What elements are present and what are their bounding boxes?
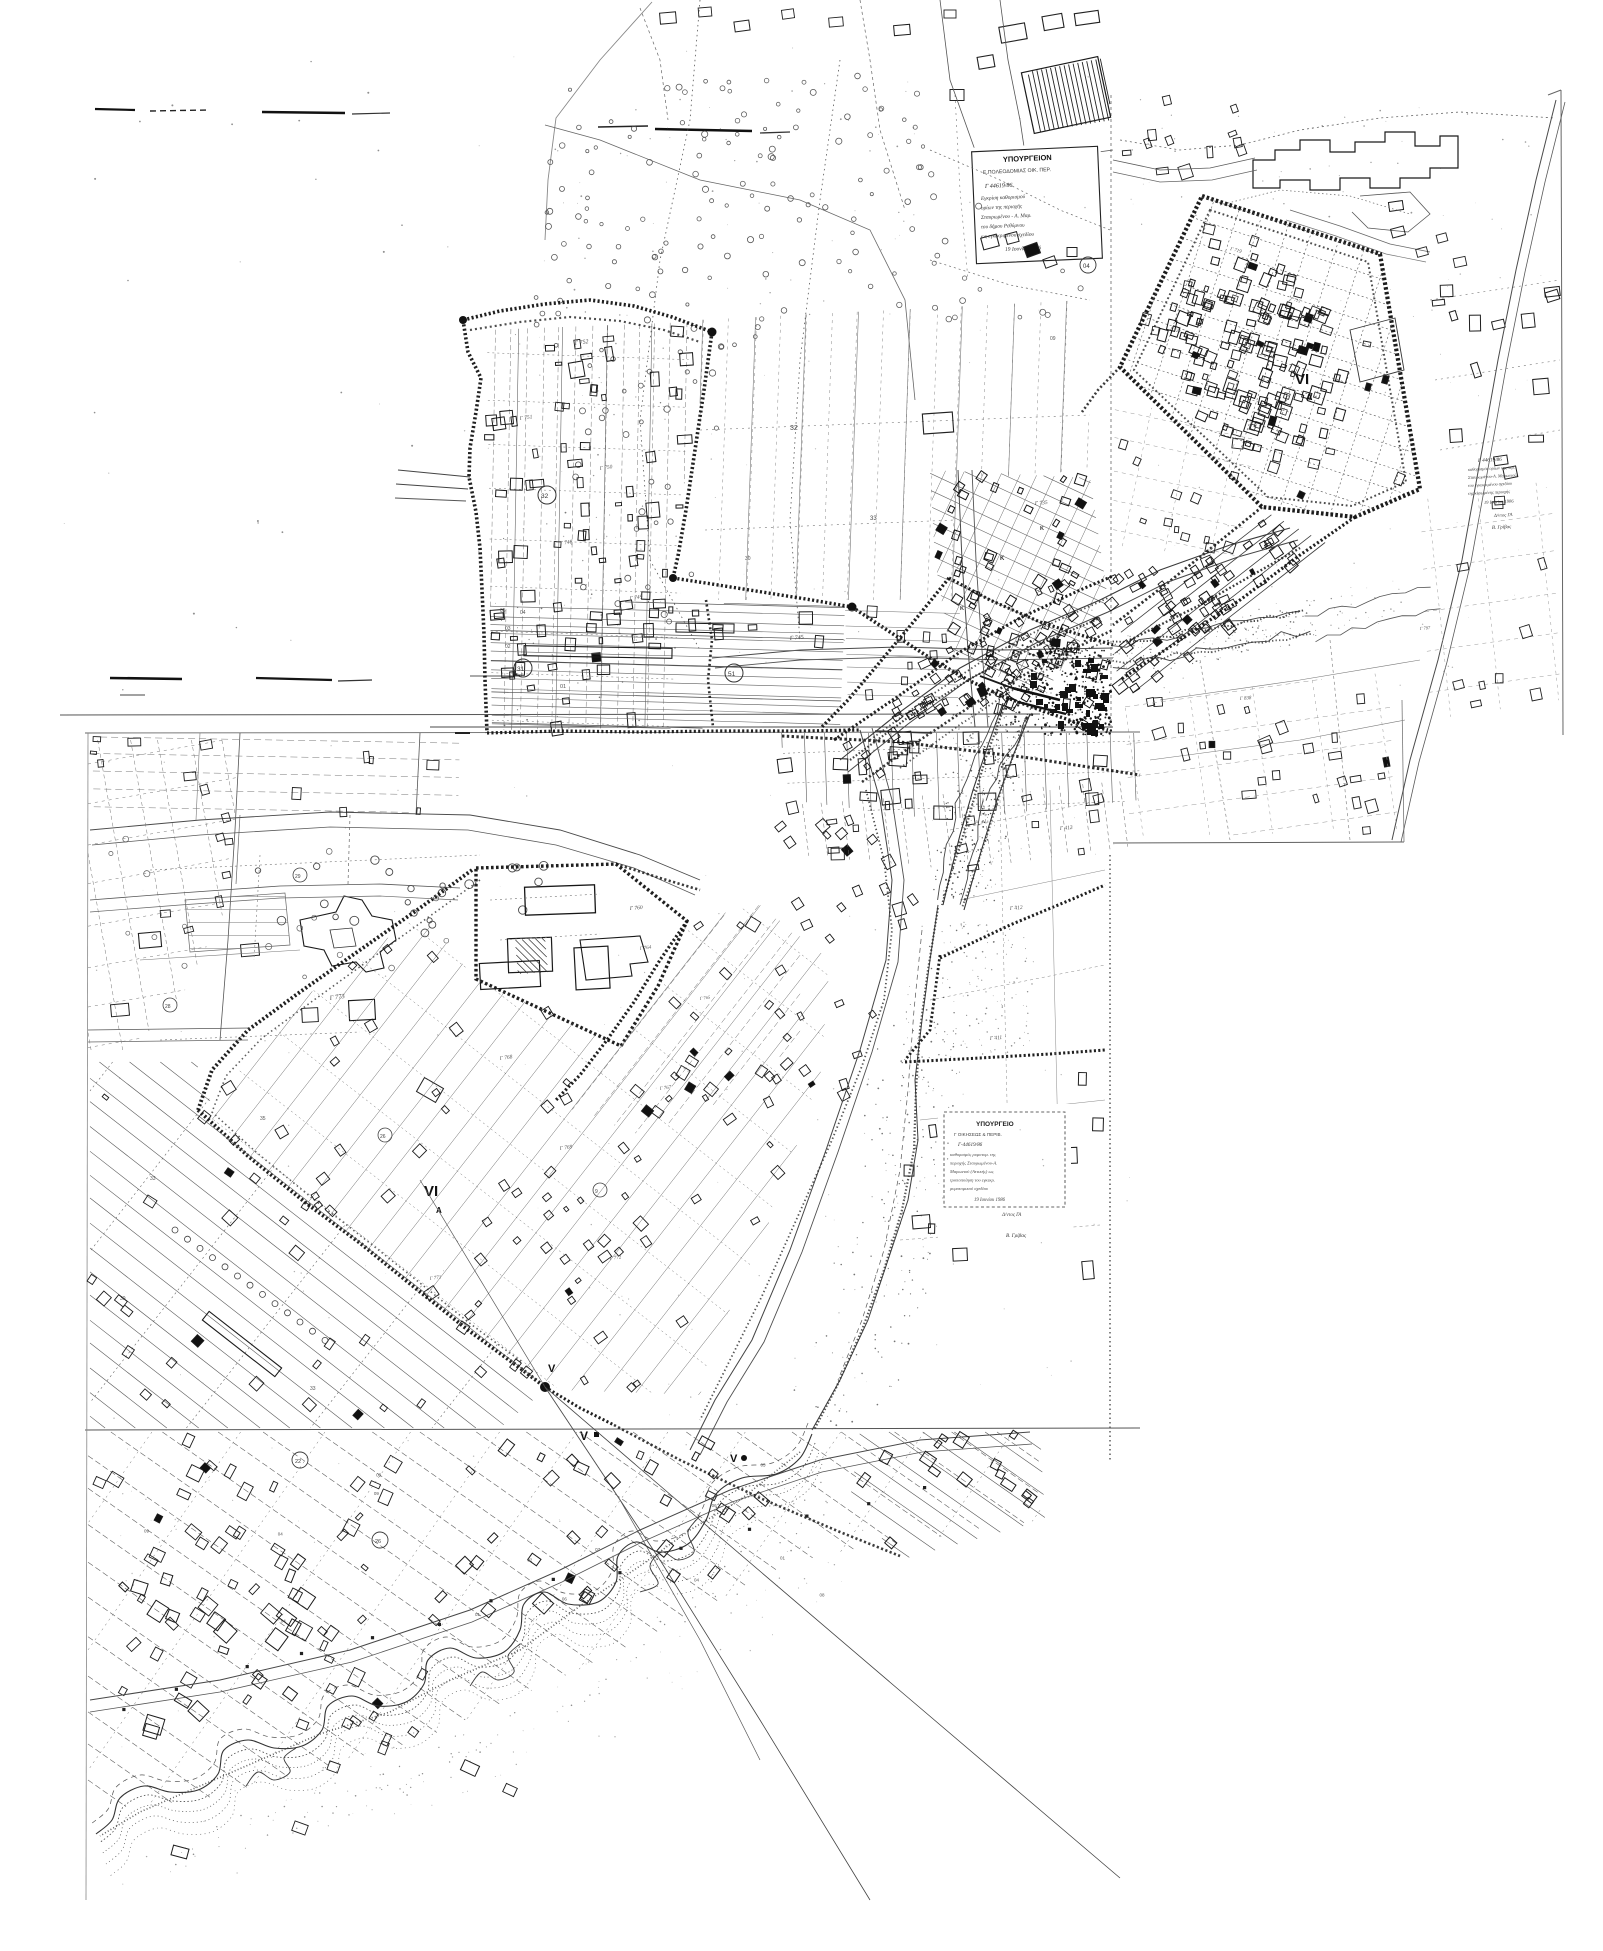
svg-text:Β. Γρίβας: Β. Γρίβας: [1492, 525, 1513, 531]
svg-text:51: 51: [728, 671, 736, 678]
svg-text:V: V: [548, 1363, 556, 1375]
svg-text:ρυμοτομικού σχεδίου: ρυμοτομικού σχεδίου: [949, 1186, 988, 1191]
svg-text:26: 26: [380, 1134, 386, 1140]
svg-text:09: 09: [144, 1529, 150, 1534]
svg-text:Γ 413: Γ 413: [1059, 824, 1074, 832]
svg-text:Δ/ντος ΓΑ: Δ/ντος ΓΑ: [1493, 513, 1513, 519]
svg-text:Γ 44619/86: Γ 44619/86: [984, 182, 1013, 190]
svg-text:Γ 745: Γ 745: [789, 634, 804, 642]
svg-text:01: 01: [780, 1556, 786, 1561]
svg-text:Γ 411: Γ 411: [989, 1034, 1003, 1042]
svg-text:Δ/ντος ΓΑ: Δ/ντος ΓΑ: [1001, 1213, 1022, 1218]
svg-text:06: 06: [562, 1596, 568, 1601]
svg-text:29: 29: [295, 874, 301, 880]
svg-text:08: 08: [820, 1592, 826, 1597]
svg-text:04: 04: [278, 1532, 284, 1537]
svg-text:A: A: [1306, 392, 1313, 402]
svg-text:05: 05: [500, 608, 506, 614]
svg-text:Β. Γρίβας: Β. Γρίβας: [1006, 1233, 1027, 1239]
svg-text:01: 01: [475, 1612, 481, 1617]
svg-text:39: 39: [120, 1296, 126, 1302]
svg-text:Γ 797: Γ 797: [1419, 625, 1432, 631]
svg-text:ΥΠΟΥΡΓΕΙΟ: ΥΠΟΥΡΓΕΙΟ: [976, 1121, 1014, 1128]
svg-text:19 Ιουνίου 1986: 19 Ιουνίου 1986: [974, 1198, 1006, 1203]
svg-text:09: 09: [374, 1491, 380, 1496]
svg-text:VI: VI: [1295, 371, 1309, 388]
svg-text:Γ 735: Γ 735: [1034, 500, 1048, 507]
svg-text:30: 30: [745, 556, 751, 562]
svg-text:02: 02: [527, 1557, 533, 1562]
svg-text:35: 35: [260, 1116, 266, 1122]
svg-text:Γ ΟΙΚΗΣΕΩΣ & ΠΕΡΙΒ.: Γ ΟΙΚΗΣΕΩΣ & ΠΕΡΙΒ.: [954, 1132, 1002, 1137]
svg-text:καθορισμός ρυμοτομ. της: καθορισμός ρυμοτομ. της: [950, 1152, 996, 1157]
svg-text:VI: VI: [424, 1183, 438, 1200]
svg-text:31: 31: [517, 666, 525, 673]
svg-text:9: 9: [595, 1189, 598, 1195]
svg-text:01: 01: [560, 684, 566, 690]
svg-text:26: 26: [375, 1539, 381, 1545]
svg-text:04: 04: [694, 1577, 700, 1582]
svg-text:04: 04: [520, 610, 526, 616]
svg-text:33: 33: [870, 516, 877, 522]
svg-text:04: 04: [1083, 264, 1090, 270]
svg-text:K: K: [1000, 556, 1005, 562]
svg-text:Γ 412: Γ 412: [1009, 904, 1024, 912]
svg-text:32: 32: [541, 493, 549, 500]
svg-text:32: 32: [790, 425, 798, 432]
svg-text:K: K: [1040, 526, 1044, 532]
svg-text:28: 28: [165, 1004, 171, 1010]
svg-text:09: 09: [1050, 336, 1056, 342]
svg-text:07: 07: [595, 1547, 601, 1552]
svg-text:K: K: [960, 606, 964, 612]
svg-text:Γ 760: Γ 760: [629, 905, 643, 912]
svg-text:33: 33: [150, 1176, 156, 1182]
svg-text:22: 22: [295, 1459, 301, 1465]
svg-text:03: 03: [376, 1473, 382, 1478]
svg-text:02: 02: [505, 644, 511, 650]
svg-text:τροποποίηση του εγκεκρ.: τροποποίηση του εγκεκρ.: [950, 1178, 995, 1183]
svg-text:Μαρωνιού (Αττικής) ως: Μαρωνιού (Αττικής) ως: [949, 1169, 994, 1174]
svg-text:33: 33: [310, 1386, 316, 1392]
svg-text:περιοχής Σταυρωμένου-Α.: περιοχής Σταυρωμένου-Α.: [950, 1161, 997, 1166]
svg-text:Γ-44619/86: Γ-44619/86: [957, 1141, 983, 1148]
svg-text:03: 03: [505, 626, 511, 632]
